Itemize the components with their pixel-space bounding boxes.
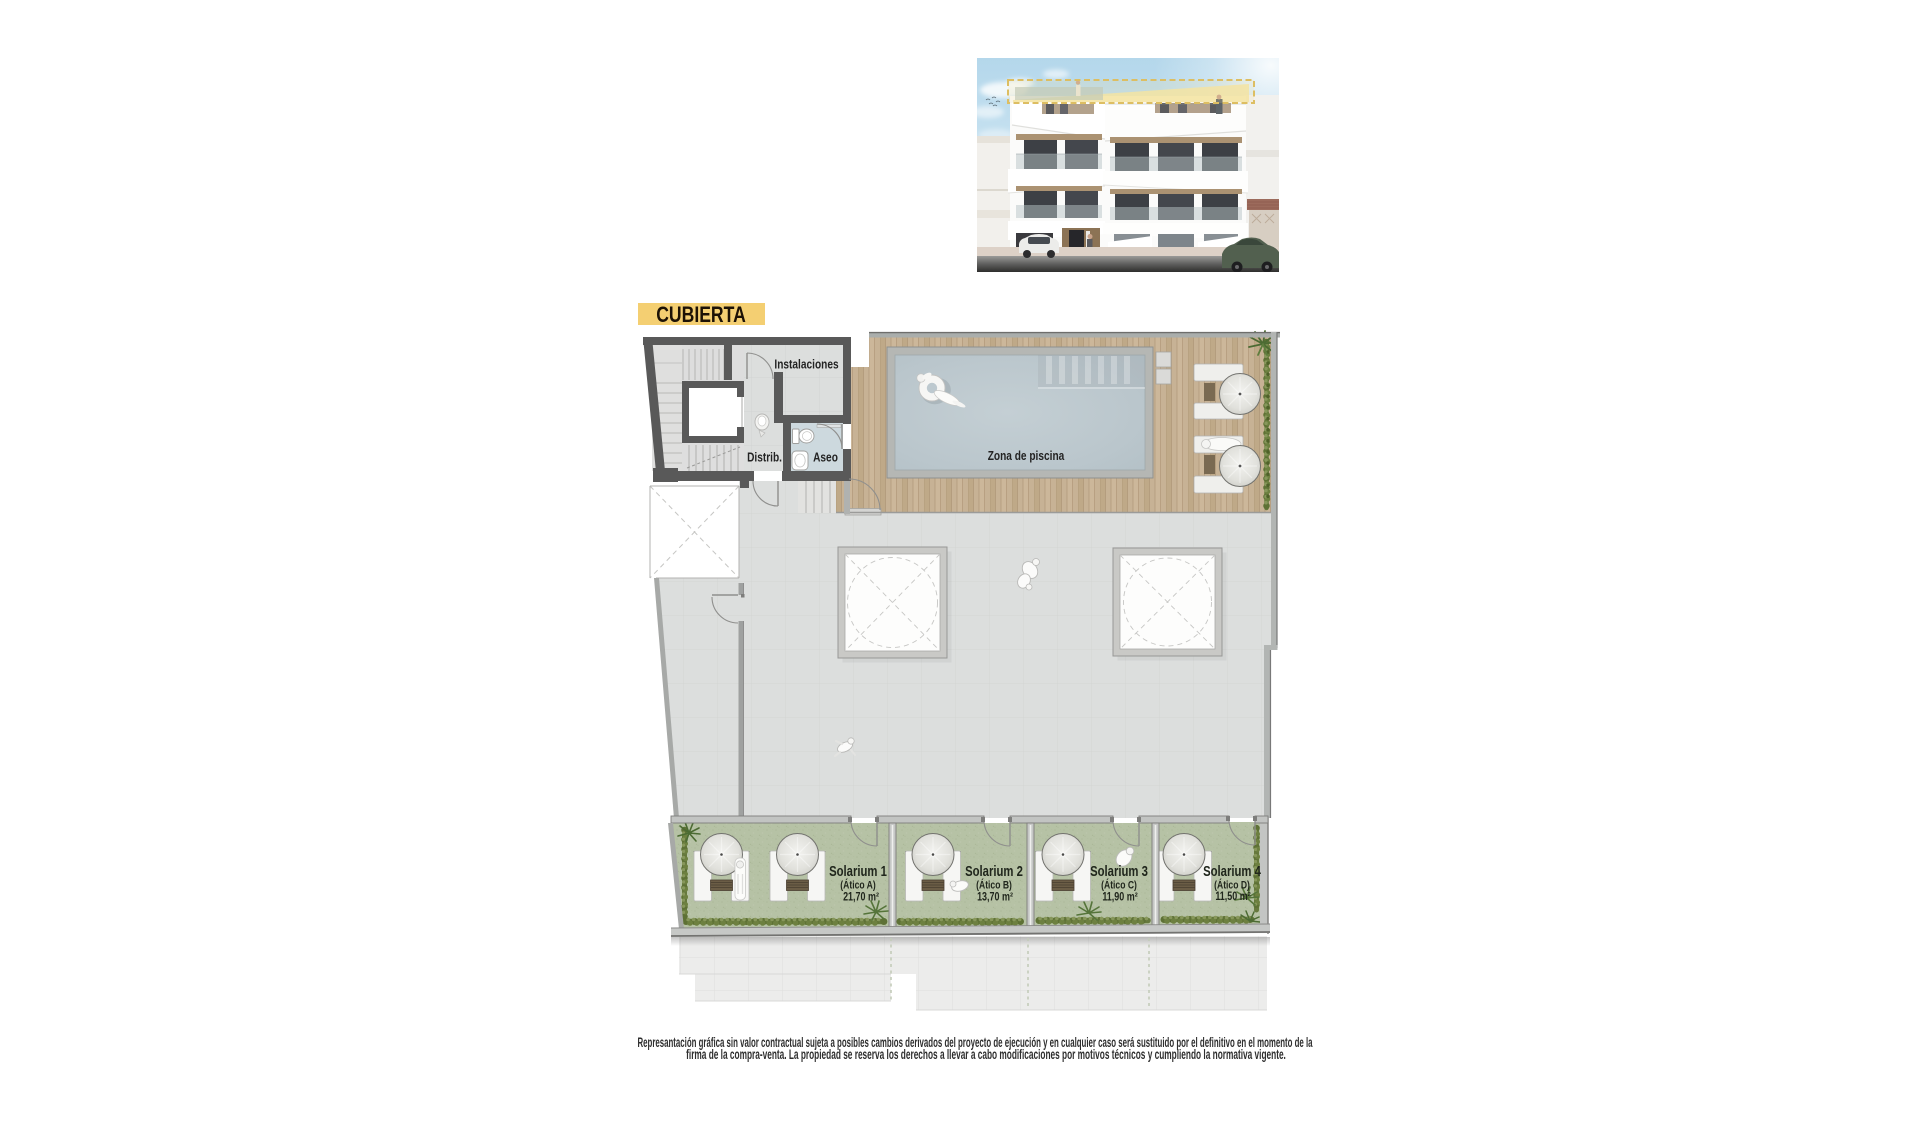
svg-text:firma de la compra-venta. La p: firma de la compra-venta. La propiedad s… — [686, 1048, 1286, 1062]
svg-text:Solarium 1: Solarium 1 — [829, 863, 887, 880]
svg-text:(Ático B): (Ático B) — [976, 880, 1012, 892]
svg-text:Instalaciones: Instalaciones — [774, 357, 838, 371]
svg-text:Zona de piscina: Zona de piscina — [988, 449, 1065, 463]
svg-text:21,70 m²: 21,70 m² — [843, 892, 879, 904]
svg-text:Solarium 3: Solarium 3 — [1090, 863, 1148, 880]
svg-text:CUBIERTA: CUBIERTA — [656, 303, 746, 327]
svg-text:Distrib.: Distrib. — [747, 450, 782, 464]
svg-text:(Ático C): (Ático C) — [1101, 880, 1137, 892]
svg-text:(Ático D): (Ático D) — [1214, 880, 1250, 892]
svg-text:Aseo: Aseo — [813, 450, 838, 464]
svg-text:11,50 m²: 11,50 m² — [1215, 891, 1251, 903]
svg-text:(Ático A): (Ático A) — [840, 880, 875, 892]
svg-text:Solarium 2: Solarium 2 — [965, 863, 1023, 880]
svg-text:13,70 m²: 13,70 m² — [977, 892, 1013, 904]
svg-text:11,90 m²: 11,90 m² — [1102, 892, 1138, 904]
svg-text:Solarium 4: Solarium 4 — [1203, 863, 1261, 880]
